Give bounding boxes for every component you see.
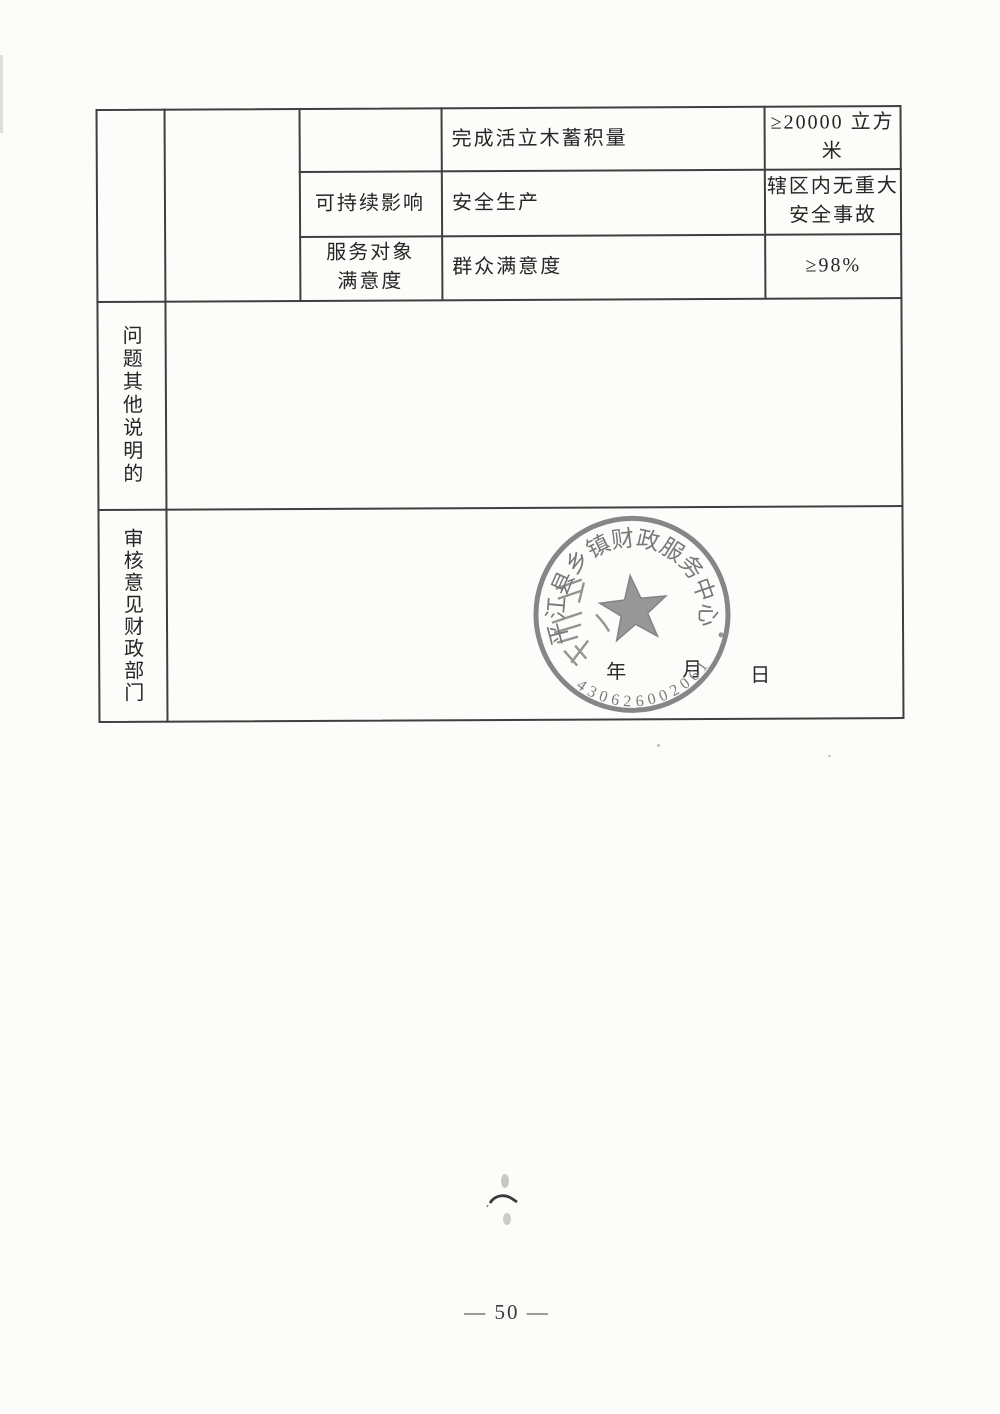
group-cell-sustain: 可持续影响 (299, 170, 441, 236)
ink-smudge-artifact (485, 1168, 531, 1230)
indicator-cell-volume: 完成活立木蓄积量 (441, 106, 764, 171)
page-number: — 50 — (407, 1300, 607, 1325)
scanned-document-page: 完成活立木蓄积量 ≥20000 立方 米 可持续影响 安全生产 辖区内无重大 安… (0, 0, 1000, 1414)
indicator-cell-safety: 安全生产 (441, 169, 764, 236)
other-notes-content (164, 297, 903, 509)
date-day-label: 日 (750, 659, 770, 688)
group-cell-satisfaction: 服务对象 满意度 (299, 235, 441, 300)
target-cell-volume: ≥20000 立方 米 (763, 105, 901, 169)
scan-speck (657, 744, 660, 747)
scan-speck (828, 755, 831, 757)
other-notes-label: 问题其他说明的 (96, 301, 165, 509)
official-seal-stamp: 平江县乡镇财政服务中心 430626002061 (511, 494, 752, 735)
target-cell-safety: 辖区内无重大 安全事故 (764, 168, 902, 234)
seal-ink-dot (719, 632, 724, 637)
indicator-cell-satisfaction: 群众满意度 (441, 234, 764, 300)
performance-table: 完成活立木蓄积量 ≥20000 立方 米 可持续影响 安全生产 辖区内无重大 安… (96, 105, 905, 723)
scan-edge-artifact (0, 55, 3, 133)
target-cell-satisfaction: ≥98% (764, 233, 902, 298)
review-opinion-label: 审核意见财政部门 (97, 509, 166, 723)
